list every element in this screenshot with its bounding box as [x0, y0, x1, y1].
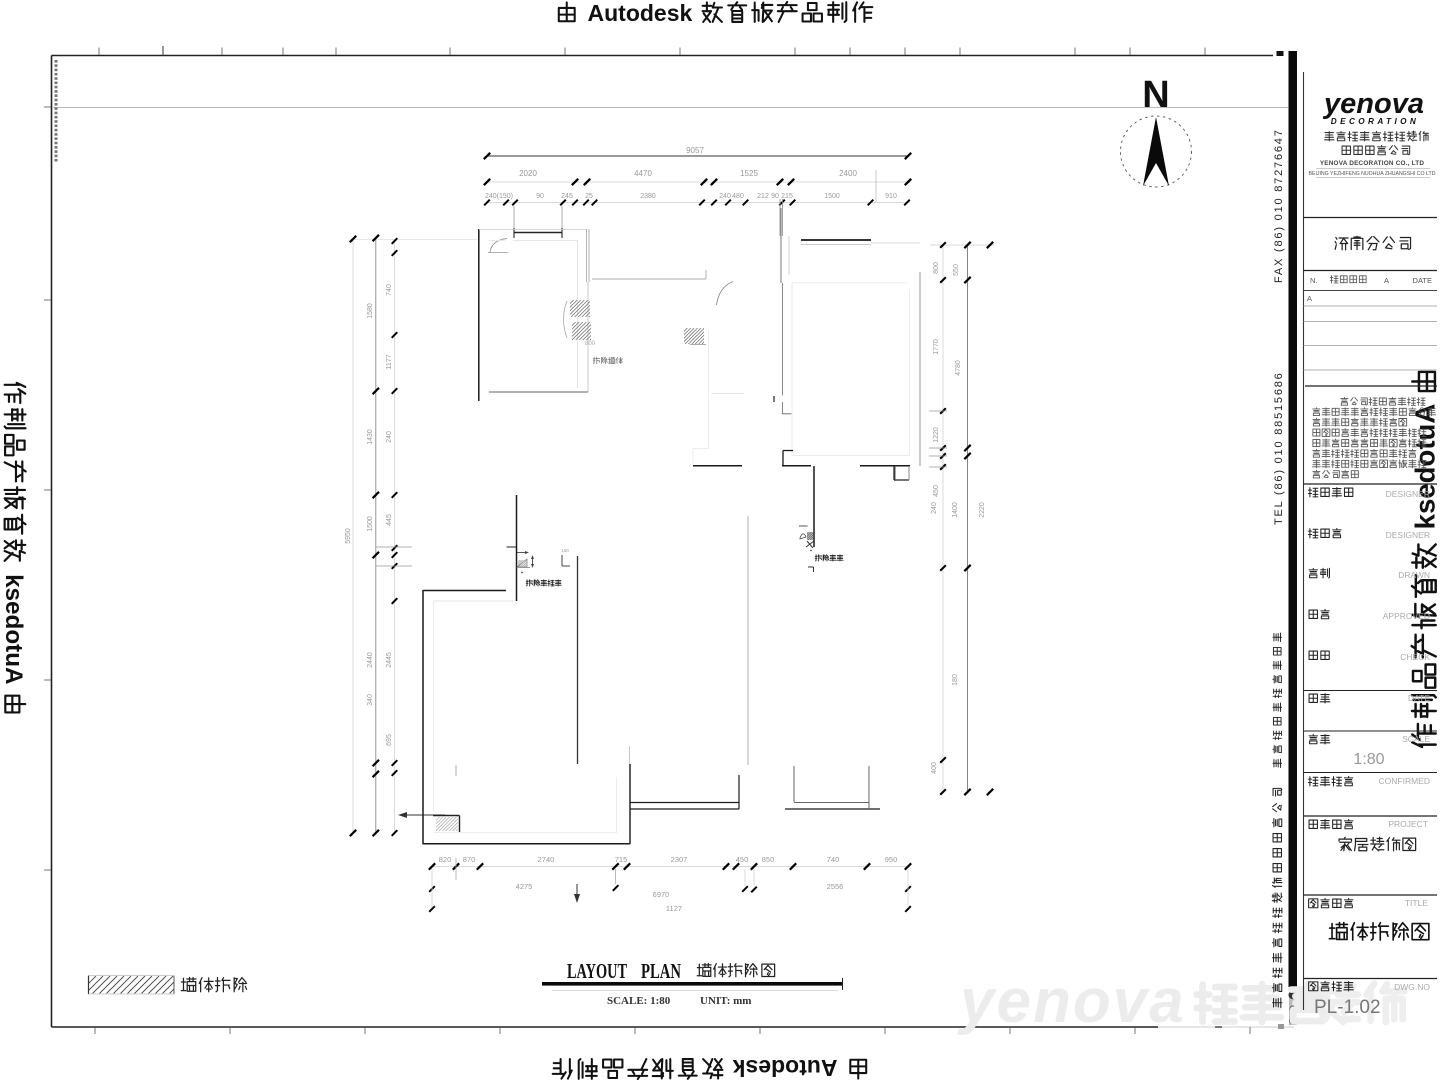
svg-text:N: N: [1142, 74, 1169, 116]
svg-text:2740: 2740: [538, 855, 555, 864]
svg-text:450: 450: [736, 855, 749, 864]
svg-text:340: 340: [367, 694, 374, 706]
svg-text:450: 450: [933, 485, 940, 497]
svg-text:5950: 5950: [345, 528, 352, 544]
svg-text:DATE: DATE: [1408, 693, 1430, 703]
svg-text:695: 695: [386, 734, 393, 746]
svg-text:Autodesk: Autodesk: [733, 1055, 838, 1080]
svg-text:740: 740: [386, 284, 393, 296]
svg-text:4275: 4275: [516, 882, 533, 891]
svg-text:245: 245: [561, 193, 573, 200]
svg-text:PLAN: PLAN: [641, 959, 681, 983]
svg-text:N.: N.: [1310, 276, 1318, 285]
svg-text:ksedotuA: ksedotuA: [0, 574, 27, 685]
svg-text:212: 212: [757, 193, 769, 200]
svg-text:PL-1.02: PL-1.02: [1314, 997, 1381, 1018]
svg-text:APPROVED: APPROVED: [1383, 611, 1430, 621]
svg-text:4780: 4780: [955, 360, 962, 376]
svg-text:4470: 4470: [634, 169, 652, 178]
svg-text:1400: 1400: [952, 502, 959, 518]
svg-text:TITLE: TITLE: [1405, 898, 1428, 908]
svg-text:90: 90: [771, 193, 779, 200]
svg-text:820: 820: [439, 855, 452, 864]
svg-text:yenova: yenova: [1322, 88, 1424, 120]
svg-text:240: 240: [719, 193, 731, 200]
svg-text:1525: 1525: [740, 169, 758, 178]
svg-text:150: 150: [561, 548, 569, 553]
svg-text:CHECK: CHECK: [1400, 652, 1430, 662]
svg-text:800: 800: [585, 341, 596, 347]
svg-text:850: 850: [762, 855, 775, 864]
svg-text:1430: 1430: [367, 429, 374, 445]
svg-text:740: 740: [827, 855, 840, 864]
svg-text:A: A: [1307, 294, 1312, 303]
svg-text:9057: 9057: [686, 146, 704, 155]
svg-text:DECORATION: DECORATION: [1331, 117, 1419, 126]
svg-text:YENOVA DECORATION CO., LTD: YENOVA DECORATION CO., LTD: [1320, 160, 1425, 167]
svg-text:TEL (86) 010 88515686: TEL (86) 010 88515686: [1273, 371, 1285, 525]
svg-text:2400: 2400: [839, 169, 857, 178]
svg-text:1177: 1177: [386, 354, 393, 369]
svg-text:DRAWN: DRAWN: [1398, 570, 1430, 580]
svg-text:1500: 1500: [367, 516, 374, 532]
svg-text:6970: 6970: [653, 890, 670, 899]
svg-text:910: 910: [885, 193, 897, 200]
svg-text:DESIGNER: DESIGNER: [1386, 489, 1430, 499]
svg-text:870: 870: [463, 855, 476, 864]
svg-text:A: A: [1384, 276, 1389, 285]
svg-text:1127: 1127: [666, 904, 682, 913]
svg-text:DATE: DATE: [1413, 276, 1432, 285]
svg-text:SCALE: 1:80: SCALE: 1:80: [607, 995, 671, 1007]
svg-text:LAYOUT: LAYOUT: [567, 959, 627, 983]
svg-text:SCALE: SCALE: [1402, 734, 1430, 744]
svg-text:1500: 1500: [824, 193, 840, 200]
svg-text:215: 215: [781, 193, 793, 200]
svg-text:DESIGNER: DESIGNER: [1386, 530, 1430, 540]
svg-text:yenova: yenova: [957, 967, 1186, 1036]
svg-text:550: 550: [953, 264, 960, 276]
svg-text:Autodesk: Autodesk: [588, 0, 693, 26]
svg-text:2380: 2380: [640, 193, 656, 200]
svg-text:445: 445: [386, 514, 393, 526]
svg-text:2220: 2220: [979, 502, 986, 518]
svg-text:1:80: 1:80: [1353, 751, 1384, 768]
svg-text:2307: 2307: [671, 855, 688, 864]
svg-text:400: 400: [931, 762, 938, 774]
svg-text:480: 480: [732, 193, 744, 200]
svg-text:180: 180: [952, 674, 959, 686]
svg-text:DWG.NO: DWG.NO: [1394, 982, 1430, 992]
svg-text:UNIT: mm: UNIT: mm: [700, 995, 751, 1007]
svg-text:240: 240: [931, 502, 938, 514]
svg-text:1580: 1580: [367, 303, 374, 319]
svg-text:FAX (86) 010 87276647: FAX (86) 010 87276647: [1273, 128, 1285, 283]
svg-text:2440: 2440: [367, 652, 374, 668]
svg-text:950: 950: [885, 855, 898, 864]
svg-text:2445: 2445: [386, 652, 393, 668]
svg-text:PROJECT: PROJECT: [1388, 819, 1428, 829]
svg-text:CONFIRMED: CONFIRMED: [1379, 776, 1430, 786]
svg-text:715: 715: [615, 855, 628, 864]
svg-text:2020: 2020: [519, 169, 537, 178]
svg-text:BEIJING YEZHIFENG NUOHUA ZHUAN: BEIJING YEZHIFENG NUOHUA ZHUANGSHI CO LT…: [1309, 171, 1436, 177]
svg-text:240: 240: [386, 431, 393, 443]
svg-text:1220: 1220: [933, 427, 940, 443]
svg-text:800: 800: [933, 262, 940, 274]
svg-text:240(150): 240(150): [485, 193, 513, 200]
svg-text:90: 90: [536, 193, 544, 200]
svg-text:2556: 2556: [827, 882, 844, 891]
svg-text:25: 25: [585, 193, 593, 200]
svg-text:1770: 1770: [933, 339, 940, 355]
